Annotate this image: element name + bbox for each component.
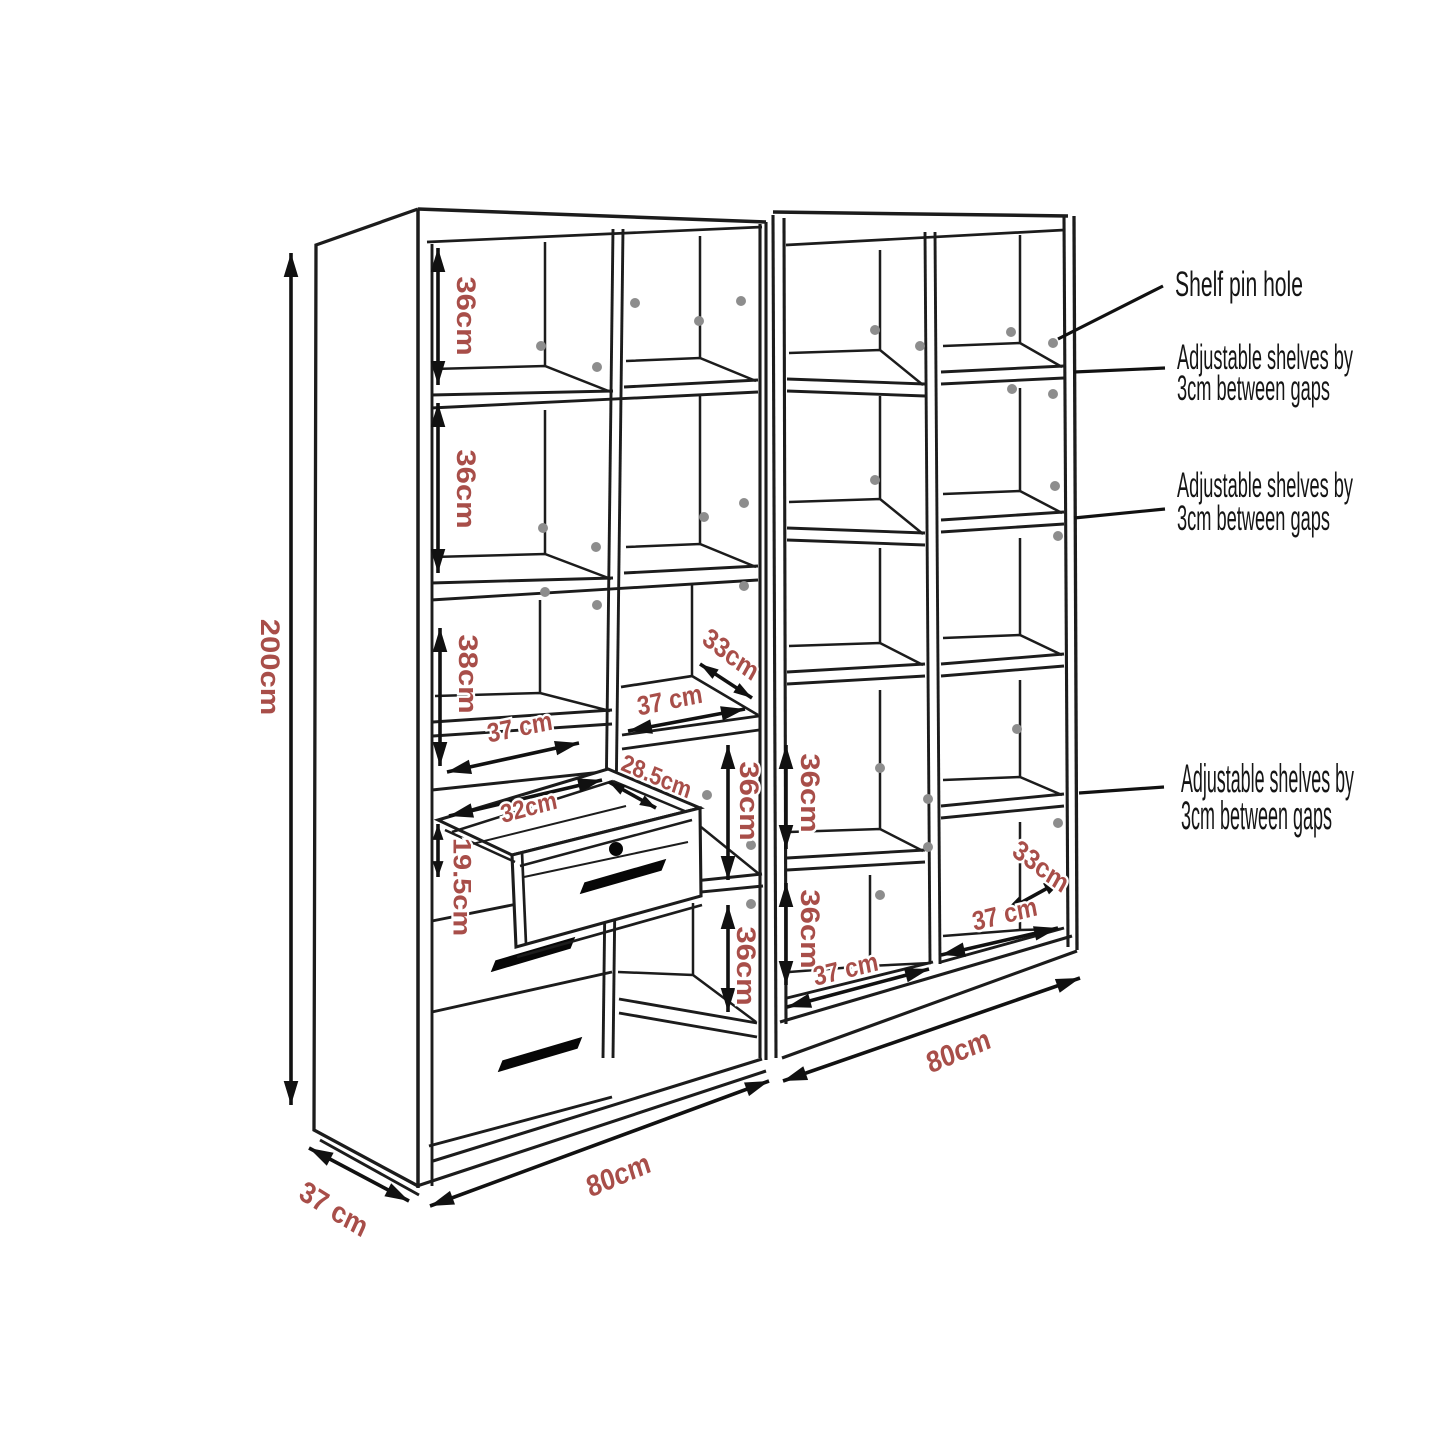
svg-text:36cm: 36cm — [794, 753, 824, 832]
svg-text:38cm: 38cm — [452, 634, 482, 713]
svg-text:Shelf pin hole: Shelf pin hole — [1175, 265, 1303, 304]
svg-text:200cm: 200cm — [254, 619, 284, 716]
svg-text:3cm between gaps: 3cm between gaps — [1177, 369, 1330, 408]
svg-text:3cm between gaps: 3cm between gaps — [1177, 499, 1330, 538]
svg-text:19.5cm: 19.5cm — [448, 838, 476, 936]
svg-text:3cm between gaps: 3cm between gaps — [1181, 794, 1332, 838]
svg-text:36cm: 36cm — [450, 276, 480, 355]
svg-text:36cm: 36cm — [730, 926, 760, 1005]
svg-text:36cm: 36cm — [450, 449, 480, 528]
svg-text:36cm: 36cm — [733, 761, 763, 840]
svg-text:36cm: 36cm — [794, 889, 824, 968]
